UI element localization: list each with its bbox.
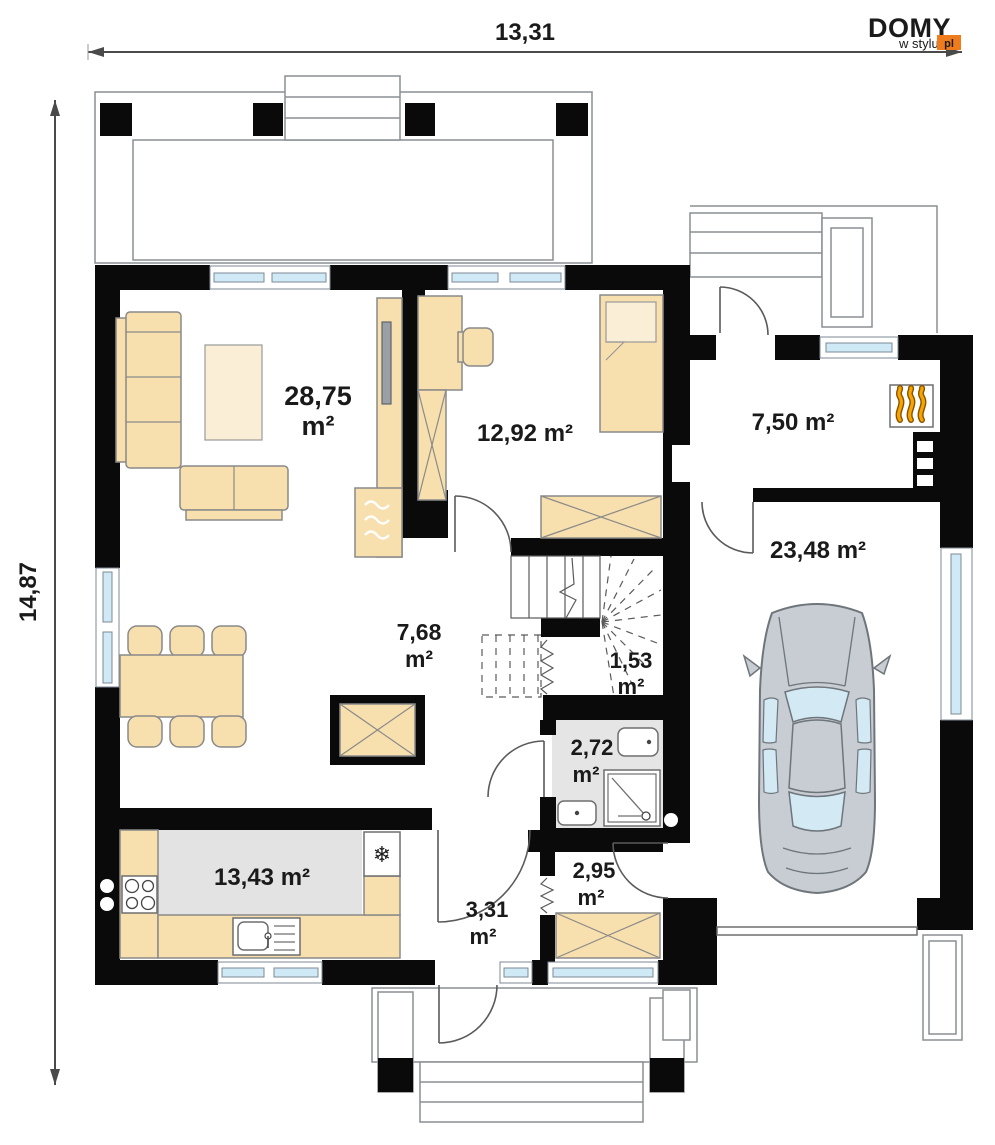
kitchen-sink-icon (233, 918, 300, 955)
window-entry (820, 337, 898, 358)
coffee-table (205, 345, 262, 440)
window-living (210, 266, 330, 289)
bed (600, 295, 663, 432)
terrace-top (95, 76, 592, 263)
bathroom-area-label: 2,72 (571, 735, 614, 760)
kitchen-area-label: 13,43 m² (214, 864, 310, 891)
sofa-small (180, 466, 288, 520)
top-dimension: 13,31 (88, 19, 962, 60)
fireplace-cabinet (355, 488, 402, 557)
bedroom-door (455, 496, 511, 552)
logo-tagline-text: w stylu (898, 36, 939, 51)
window-dining (96, 568, 119, 687)
logo-tld-text: pl (944, 38, 954, 50)
desk-chair (458, 328, 493, 366)
terrace-bottom (372, 988, 697, 1122)
duct-xbox (340, 704, 415, 756)
utility-unit-label: m² (578, 885, 605, 910)
car-icon (744, 604, 890, 893)
car-rear-window (789, 792, 845, 831)
living-unit-label: m² (302, 411, 335, 441)
left-dimension-label: 14,87 (15, 562, 42, 622)
vestibule-unit-label: m² (470, 924, 497, 949)
tv-icon (382, 322, 391, 404)
bathroom-door (488, 741, 544, 797)
arrow-left-icon (88, 47, 104, 57)
shower-icon (604, 770, 660, 826)
heater-icon (890, 385, 933, 427)
car-roof (789, 720, 845, 793)
washbasin-2-icon (558, 801, 596, 825)
garage-area-label: 23,48 m² (770, 537, 866, 564)
car-windshield (785, 687, 849, 722)
sofa-large (116, 312, 181, 468)
wall-break-zigzag (541, 640, 553, 694)
window-vestibule (500, 962, 532, 983)
arrow-down-icon (50, 1069, 60, 1085)
wall-dot-1 (100, 879, 114, 893)
living-room-furniture (116, 298, 402, 557)
window-garage (941, 548, 972, 720)
understairs-area-label: 1,53 (610, 648, 653, 673)
vestibule-area-label: 3,31 (466, 897, 509, 922)
garage-door (717, 927, 917, 935)
front-door (720, 287, 768, 335)
floor-plan-page: ❄ (0, 0, 995, 1145)
wall-niche (672, 445, 690, 482)
entry-garage-door (702, 502, 753, 553)
bedroom-area-label: 12,92 m² (477, 420, 573, 447)
utility-area-label: 2,95 (573, 858, 616, 883)
window-bedroom (448, 266, 565, 289)
entrance-steps (690, 213, 822, 277)
arrow-up-icon (50, 100, 60, 116)
stairs-dashed-flight (482, 635, 541, 697)
chimney-vents (917, 441, 933, 486)
wall-dot-2 (100, 897, 114, 911)
fridge-snowflake: ❄ (373, 842, 391, 867)
utility-wardrobe (556, 913, 660, 958)
window-utility (548, 962, 658, 983)
hall-unit-label: m² (405, 646, 433, 672)
window-kitchen (218, 962, 322, 983)
floor-plan-canvas: ❄ (0, 0, 995, 1145)
dining-set (120, 626, 246, 747)
car-mirror-right (874, 656, 890, 674)
left-dimension: 14,87 (15, 100, 60, 1085)
desk (418, 296, 462, 390)
entry-area-label: 7,50 m² (752, 409, 835, 436)
terrace-steps-top (285, 76, 400, 140)
washbasin-icon (618, 728, 658, 756)
terrace-steps-bottom (420, 1062, 643, 1122)
car-mirror-left (744, 656, 760, 676)
living-area-label: 28,75 (284, 381, 352, 411)
brand-logo: DOMY w stylu pl (868, 13, 961, 51)
bathroom-unit-label: m² (573, 762, 600, 787)
fridge-icon: ❄ (364, 832, 400, 876)
top-dimension-label: 13,31 (495, 19, 555, 46)
understairs-unit-label: m² (618, 674, 645, 699)
dining-table (120, 655, 243, 717)
entrance-porch (690, 206, 937, 333)
hall-area-label: 7,68 (397, 619, 442, 645)
cooktop-icon (122, 876, 157, 913)
dining-chairs-bottom (128, 716, 246, 747)
counter-right (364, 876, 400, 915)
wardrobe-1 (418, 390, 446, 500)
wall-dot-3 (664, 813, 678, 827)
wardrobe-2 (541, 496, 661, 538)
dining-chairs-top (128, 626, 246, 657)
radiator-icon (541, 878, 553, 913)
